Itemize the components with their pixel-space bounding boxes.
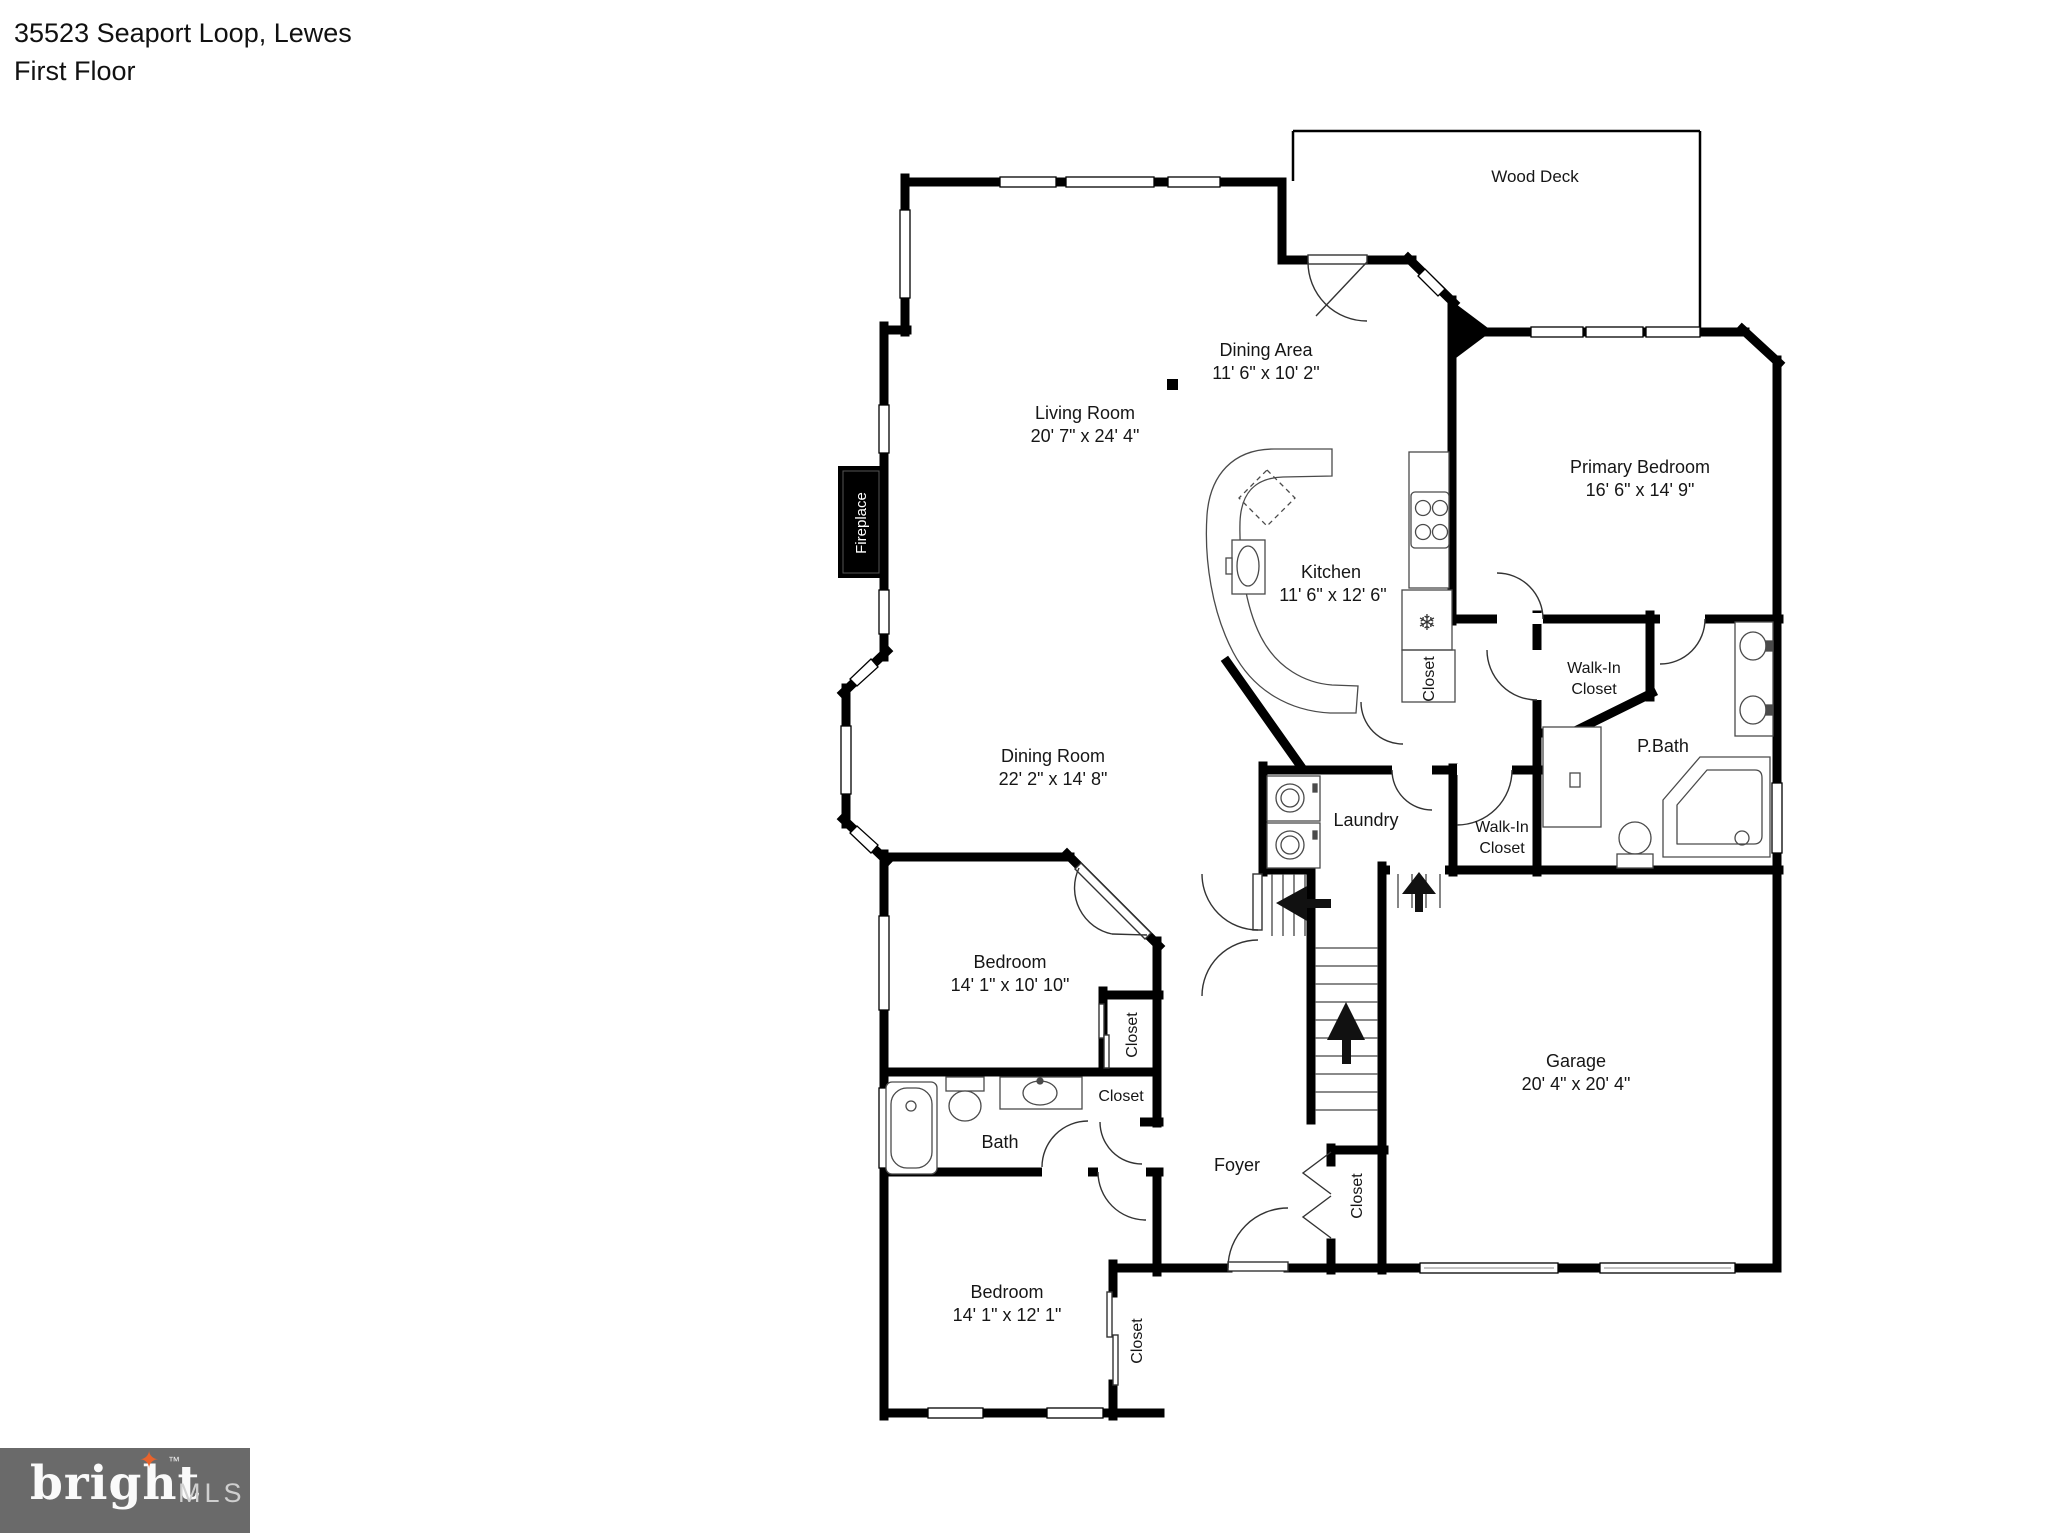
snowflake-icon: ❄ [1418,610,1436,635]
hall-bath-fixtures [886,1077,1082,1174]
dryer [1267,823,1320,868]
bedroom-middle-closet-label: Closet [1124,1012,1141,1058]
kitchen-dims: 11' 6" x 12' 6" [1279,585,1386,605]
window [1586,327,1643,337]
door-arc [1202,940,1258,996]
wood-deck-outline [1293,131,1700,331]
hall-walkin-label-2: Closet [1479,840,1525,857]
stove [1411,492,1449,548]
arrow-up-main [1327,1002,1365,1064]
window [879,590,889,634]
window [850,826,878,853]
window [1646,327,1700,337]
hall-walkin-label-1: Walk-In [1475,819,1529,836]
sliding-door [1099,1004,1104,1038]
door-arc [1392,770,1432,810]
sliding-door [1104,1035,1109,1068]
fireplace-label: Fireplace [853,492,870,554]
bedroom-front-label: Bedroom [970,1282,1043,1302]
bath-label: Bath [981,1132,1018,1152]
kitchen-label: Kitchen [1301,562,1361,582]
garage-dims: 20' 4" x 20' 4" [1522,1074,1631,1094]
window [879,405,889,453]
toilet [946,1077,984,1121]
window [1168,177,1220,187]
hall-closet-label: Closet [1098,1088,1144,1105]
refrigerator: ❄ [1402,590,1452,650]
door-arc [1202,874,1258,930]
double-vanity [1735,622,1773,736]
primary-walkin-label-1: Walk-In [1567,660,1621,677]
dining-room-label: Dining Room [1001,746,1105,766]
door-leaf [1316,262,1367,316]
fireplace: Fireplace [838,466,884,578]
shower [1543,727,1601,827]
floor-plan: Fireplace [0,0,2048,1533]
door-arc [1228,1208,1288,1268]
logo-mls-text: MLS [178,1478,246,1509]
window [1047,1408,1103,1418]
door-leaf [1075,863,1151,939]
living-room-dims: 20' 7" x 24' 4" [1031,426,1140,446]
door-leaf [1308,255,1367,264]
foyer-label: Foyer [1214,1155,1260,1175]
floor-plan-page: { "page": { "title_line1": "35523 Seapor… [0,0,2048,1533]
washer [1267,776,1320,821]
sliding-door [1113,1335,1118,1385]
window [1772,783,1782,853]
logo-star-icon: ✦ [139,1446,159,1475]
foyer-closet-label: Closet [1349,1173,1366,1219]
primary-bedroom-label: Primary Bedroom [1570,457,1710,477]
door-leaf [1112,934,1147,935]
door-arc [1361,702,1403,744]
kitchen-faucet [1226,558,1232,574]
window [1418,269,1445,296]
sliding-door [1107,1292,1112,1337]
dining-area-dims: 11' 6" x 10' 2" [1212,363,1319,383]
window [850,659,878,686]
door-leaf [1228,1262,1288,1271]
door-arc [1487,650,1537,700]
door-leaf [1253,874,1262,930]
corner-tub [1663,757,1770,857]
bedroom-middle-label: Bedroom [973,952,1046,972]
arrow-left [1276,886,1331,921]
logo-trademark: ™ [168,1454,180,1468]
window [900,210,910,298]
corner-fill [1448,298,1492,364]
pantry-closet-label: Closet [1421,656,1438,702]
bathtub [886,1082,937,1174]
window [1000,177,1056,187]
dining-area-label: Dining Area [1219,340,1313,360]
dining-room-dims: 22' 2" x 14' 8" [999,769,1108,789]
primary-walkin-label-2: Closet [1571,681,1617,698]
laundry-label: Laundry [1333,810,1398,830]
bedroom-middle-dims: 14' 1" x 10' 10" [951,975,1070,995]
window [928,1408,983,1418]
bathroom-sink [1000,1077,1082,1109]
garage-label: Garage [1546,1051,1606,1071]
window [841,726,851,794]
toilet [1617,822,1653,868]
bedroom-front-dims: 14' 1" x 12' 1" [953,1305,1062,1325]
window [879,916,889,1010]
door-arc [1098,1172,1146,1220]
primary-bath-label: P.Bath [1637,736,1689,756]
primary-bedroom-dims: 16' 6" x 14' 9" [1586,480,1695,500]
door-arc [1457,770,1512,825]
door-arc [1660,619,1705,664]
door-arc [1100,1122,1142,1164]
door-arc [1042,1121,1088,1167]
window [1531,327,1583,337]
bright-mls-logo: bright ✦ ™ MLS [0,1448,250,1533]
wood-deck-label: Wood Deck [1491,167,1579,186]
bedroom-front-closet-label: Closet [1129,1318,1146,1364]
living-room-label: Living Room [1035,403,1135,423]
structural-post [1167,379,1178,390]
laundry-fixtures [1267,776,1320,868]
window [1066,177,1154,187]
arrow-up-garage [1402,872,1436,912]
